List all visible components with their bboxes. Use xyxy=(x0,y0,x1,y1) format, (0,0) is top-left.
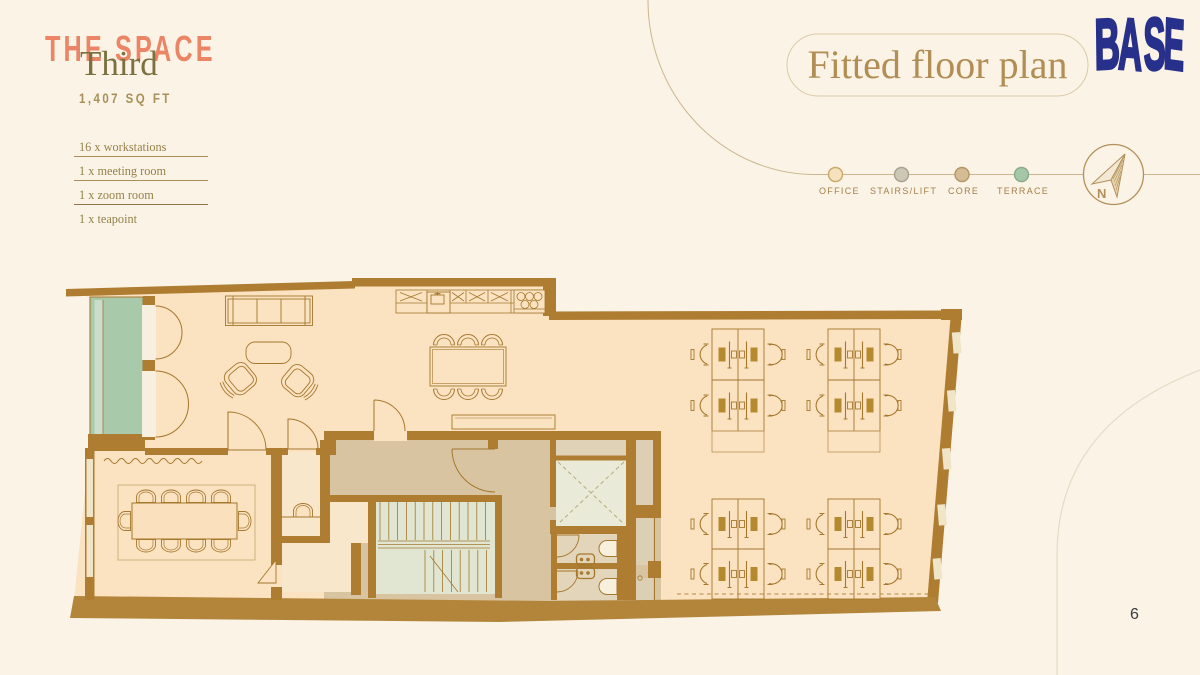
svg-text:N: N xyxy=(1097,186,1106,201)
